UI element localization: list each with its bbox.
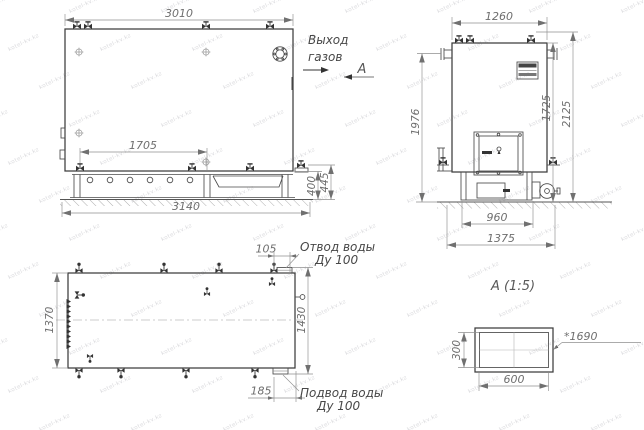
dim-text-185: 185 [251,385,272,398]
dim-text-105: 105 [256,243,277,256]
dim-text-1430: 1430 [296,306,308,333]
door-handle-icon [482,151,492,154]
water-inlet-text-2: Ду 100 [316,399,361,413]
water-outlet-text-2: Ду 100 [314,253,359,267]
water-inlet-flange-icon [273,368,288,374]
dim-text-400: 400 [306,176,318,196]
side-ground [416,202,612,209]
plan-view: 1370 1430 105 185 [44,240,383,413]
side-drain-pipe [437,148,452,171]
dim-text-2125: 2125 [561,100,573,127]
dim-text-1370: 1370 [44,306,56,333]
dim-text-960: 960 [487,211,508,224]
dim-text-300: 300 [451,340,463,360]
section-arrow-icon [344,74,352,79]
gas-outlet-text-2: газов [308,50,342,64]
dim-text-1705: 1705 [129,139,157,152]
ladder-comb-icon [67,299,72,349]
plan-right-stub-icon [295,295,305,300]
side-flange-stubs [441,48,557,60]
drawing-page: kotel-kv.kzkotel-kv.kzkotel-kv.kzkotel-k… [0,0,644,430]
dim-1430: 1430 [288,268,313,375]
front-top-valve-icons [73,22,274,29]
dim-text-1725: 1725 [541,94,553,121]
plan-top-valve-icons [75,263,277,273]
dim-1705: 1705 [80,139,207,170]
dim-text-1260: 1260 [485,10,513,23]
dim-text-1976: 1976 [410,108,422,135]
water-outlet-text-1: Отвод воды [300,240,375,254]
dim-text-445: 445 [319,172,331,192]
side-bottom-valve-icons [437,158,560,165]
front-base-valve-icons [76,161,308,172]
front-left-brackets [60,128,65,159]
gas-outlet-flange-icon [273,47,287,61]
front-tank-outline [65,29,293,171]
front-view: 3010 1705 3140 400 445 [60,7,374,217]
furnace-door [474,132,523,175]
water-inlet-text-1: Подвод воды [300,386,383,400]
dim-1370: 1370 [44,273,68,368]
water-inlet-label: Подвод воды Ду 100 [283,375,383,413]
side-top-valve-icons [455,36,535,43]
ash-trough [213,176,283,187]
front-seam-mark [292,77,294,90]
dim-1725: 1725 [541,43,558,202]
ref-1690-leader: *1690 [554,330,642,350]
dim-text-1690: *1690 [564,330,598,343]
side-base-box [461,172,532,200]
detail-view: А (1:5) 300 600 *1690 [451,279,641,391]
gas-outlet-label: Выход газов [303,33,348,73]
dim-400: 400 [295,172,322,200]
detail-title: А (1:5) [490,279,535,294]
gas-outlet-text-1: Выход [308,33,348,47]
dim-1976: 1976 [410,54,441,203]
dim-text-600: 600 [504,373,525,386]
dim-600: 600 [479,373,549,391]
water-outlet-label: Отвод воды Ду 100 [286,240,375,268]
dim-3010: 3010 [65,7,293,26]
side-view: 1260 1976 1725 2125 960 [410,10,612,249]
dim-text-3010: 3010 [165,7,193,20]
front-base-frame [70,175,295,198]
dim-185: 185 [248,371,305,402]
technical-drawing: 3010 1705 3140 400 445 [0,0,644,430]
dim-text-3140: 3140 [172,200,200,213]
dim-text-1375: 1375 [487,232,515,245]
section-view-marker: А [344,62,374,80]
nameplate-icon [517,62,538,79]
section-letter: А [357,62,367,77]
ash-door [477,183,505,198]
blower-fan-icon [532,182,560,198]
plan-tank-outline [68,273,295,368]
plan-bottom-valve-icons [75,368,258,378]
